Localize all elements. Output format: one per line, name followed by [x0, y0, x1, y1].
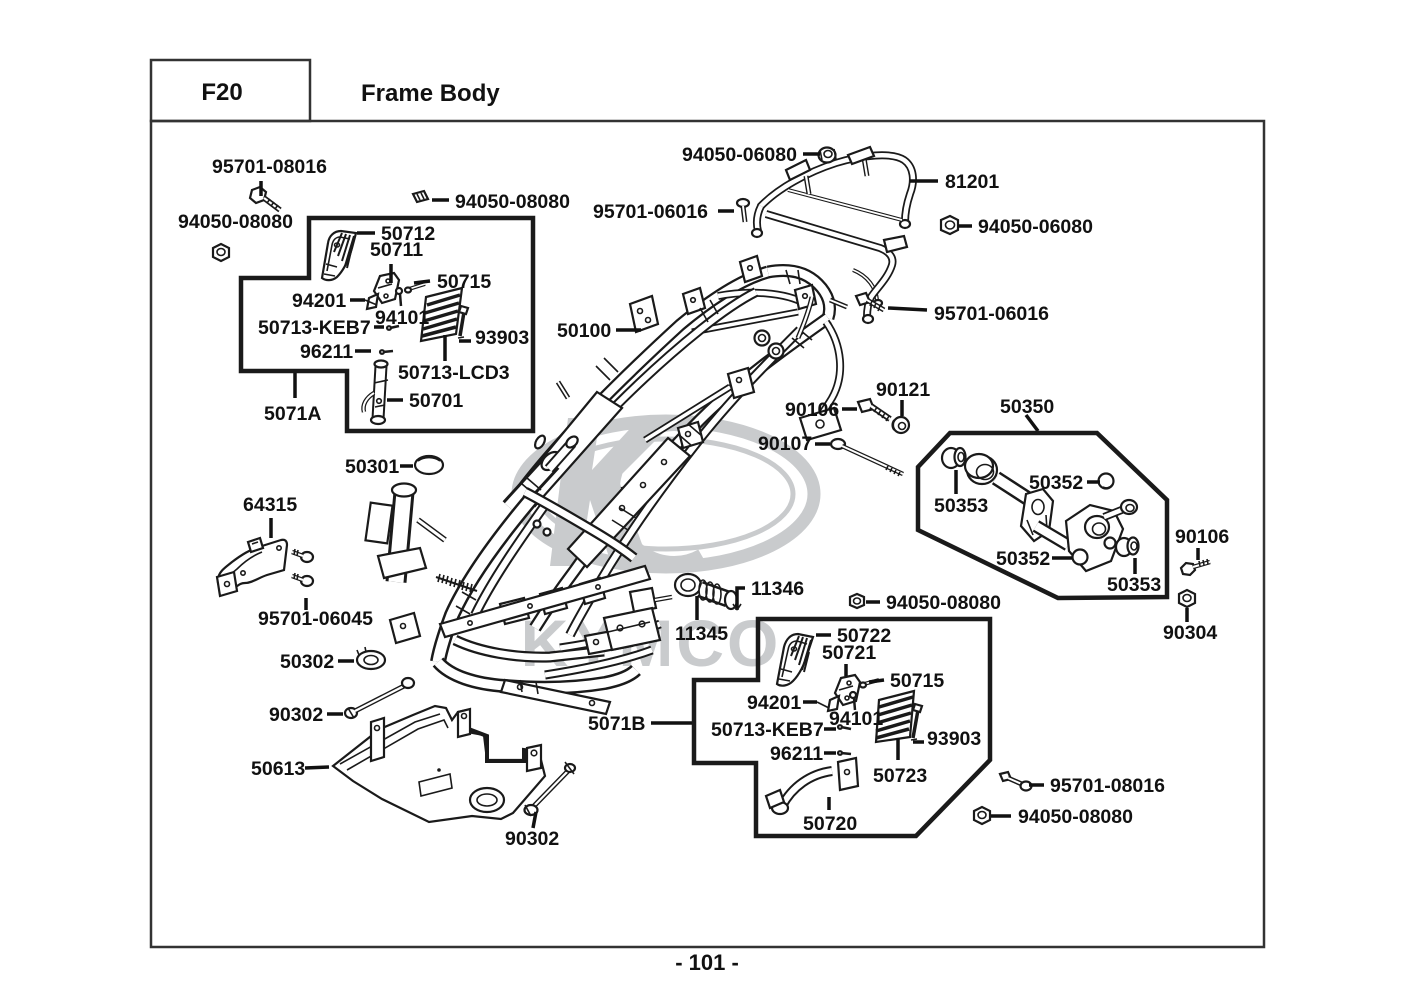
- svg-text:81201: 81201: [945, 171, 999, 193]
- svg-text:95701-06045: 95701-06045: [258, 608, 373, 630]
- svg-text:90107: 90107: [758, 433, 812, 455]
- svg-text:94050-08080: 94050-08080: [455, 191, 570, 213]
- svg-text:93903: 93903: [927, 728, 981, 750]
- svg-text:94201: 94201: [747, 692, 801, 714]
- svg-text:50302: 50302: [280, 651, 334, 673]
- svg-text:50100: 50100: [557, 320, 611, 342]
- svg-text:64315: 64315: [243, 494, 297, 516]
- svg-text:93903: 93903: [475, 327, 529, 349]
- svg-text:95701-08016: 95701-08016: [212, 156, 327, 178]
- svg-text:F20: F20: [201, 79, 242, 106]
- svg-text:50352: 50352: [1029, 472, 1083, 494]
- svg-text:90106: 90106: [785, 399, 839, 421]
- svg-text:5071B: 5071B: [588, 713, 645, 735]
- svg-text:50721: 50721: [822, 642, 876, 664]
- svg-text:94101: 94101: [829, 708, 883, 730]
- svg-text:94050-08080: 94050-08080: [886, 592, 1001, 614]
- svg-text:50613: 50613: [251, 758, 305, 780]
- svg-text:- 101 -: - 101 -: [675, 950, 739, 975]
- svg-text:50352: 50352: [996, 548, 1050, 570]
- svg-text:95701-06016: 95701-06016: [593, 201, 708, 223]
- svg-text:95701-08016: 95701-08016: [1050, 775, 1165, 797]
- svg-text:50723: 50723: [873, 765, 927, 787]
- svg-text:90304: 90304: [1163, 622, 1217, 644]
- svg-text:90121: 90121: [876, 379, 930, 401]
- svg-text:50353: 50353: [934, 495, 988, 517]
- svg-text:50715: 50715: [437, 271, 491, 293]
- svg-text:5071A: 5071A: [264, 403, 321, 425]
- svg-text:50713-KEB7: 50713-KEB7: [711, 719, 824, 741]
- svg-text:94201: 94201: [292, 290, 346, 312]
- svg-text:50713-KEB7: 50713-KEB7: [258, 317, 371, 339]
- svg-text:50720: 50720: [803, 813, 857, 835]
- svg-text:11346: 11346: [751, 578, 804, 600]
- svg-text:94050-06080: 94050-06080: [978, 216, 1093, 238]
- svg-text:94050-08080: 94050-08080: [1018, 806, 1133, 828]
- svg-text:50701: 50701: [409, 390, 463, 412]
- svg-text:90302: 90302: [269, 704, 323, 726]
- svg-text:95701-06016: 95701-06016: [934, 303, 1049, 325]
- svg-text:50713-LCD3: 50713-LCD3: [398, 362, 510, 384]
- svg-text:50301: 50301: [345, 456, 399, 478]
- svg-text:94050-06080: 94050-06080: [682, 144, 797, 166]
- svg-text:11345: 11345: [675, 623, 728, 645]
- svg-text:96211: 96211: [300, 341, 353, 363]
- svg-text:50715: 50715: [890, 670, 944, 692]
- svg-text:90106: 90106: [1175, 526, 1229, 548]
- svg-text:Frame Body: Frame Body: [361, 80, 500, 107]
- svg-text:96211: 96211: [770, 743, 823, 765]
- svg-text:50353: 50353: [1107, 574, 1161, 596]
- svg-text:90302: 90302: [505, 828, 559, 850]
- svg-text:50711: 50711: [370, 239, 423, 261]
- svg-text:94050-08080: 94050-08080: [178, 211, 293, 233]
